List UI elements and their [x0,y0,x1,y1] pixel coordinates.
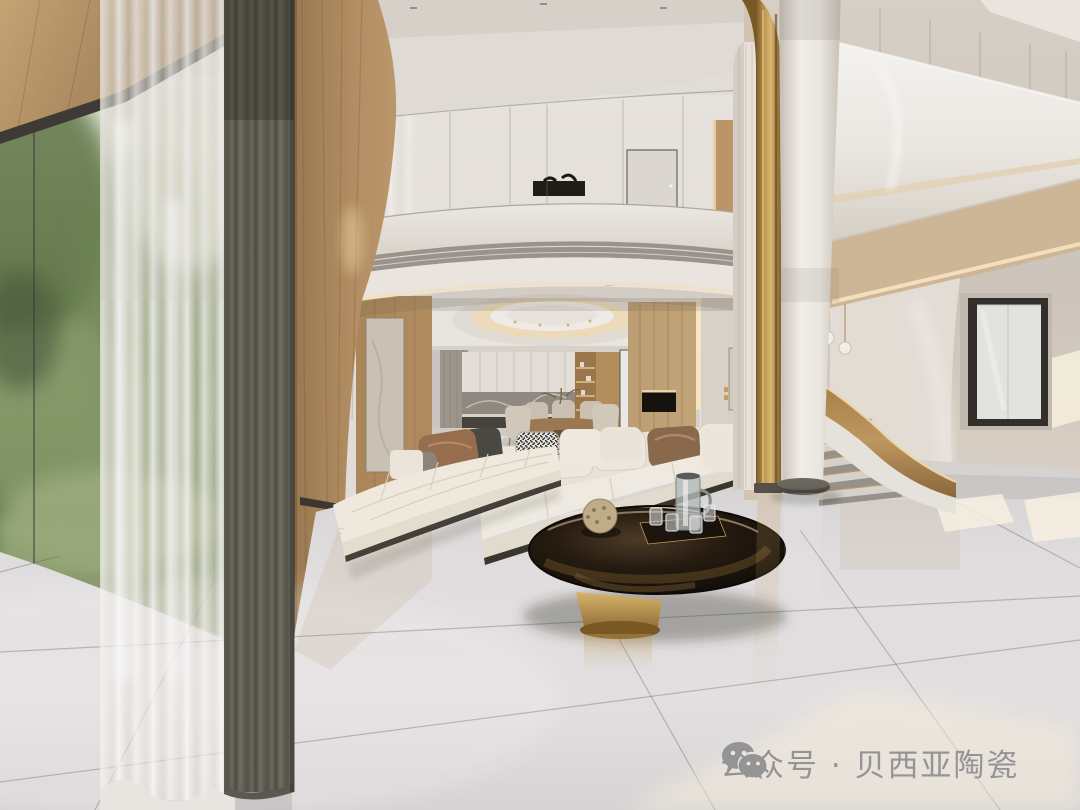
scene-canvas [0,0,1080,810]
watermark: 公众号 · 贝西亚陶瓷 [720,740,1020,785]
wechat-icon [720,740,772,786]
vignette [0,0,1080,810]
interior-photo: 公众号 · 贝西亚陶瓷 [0,0,1080,810]
